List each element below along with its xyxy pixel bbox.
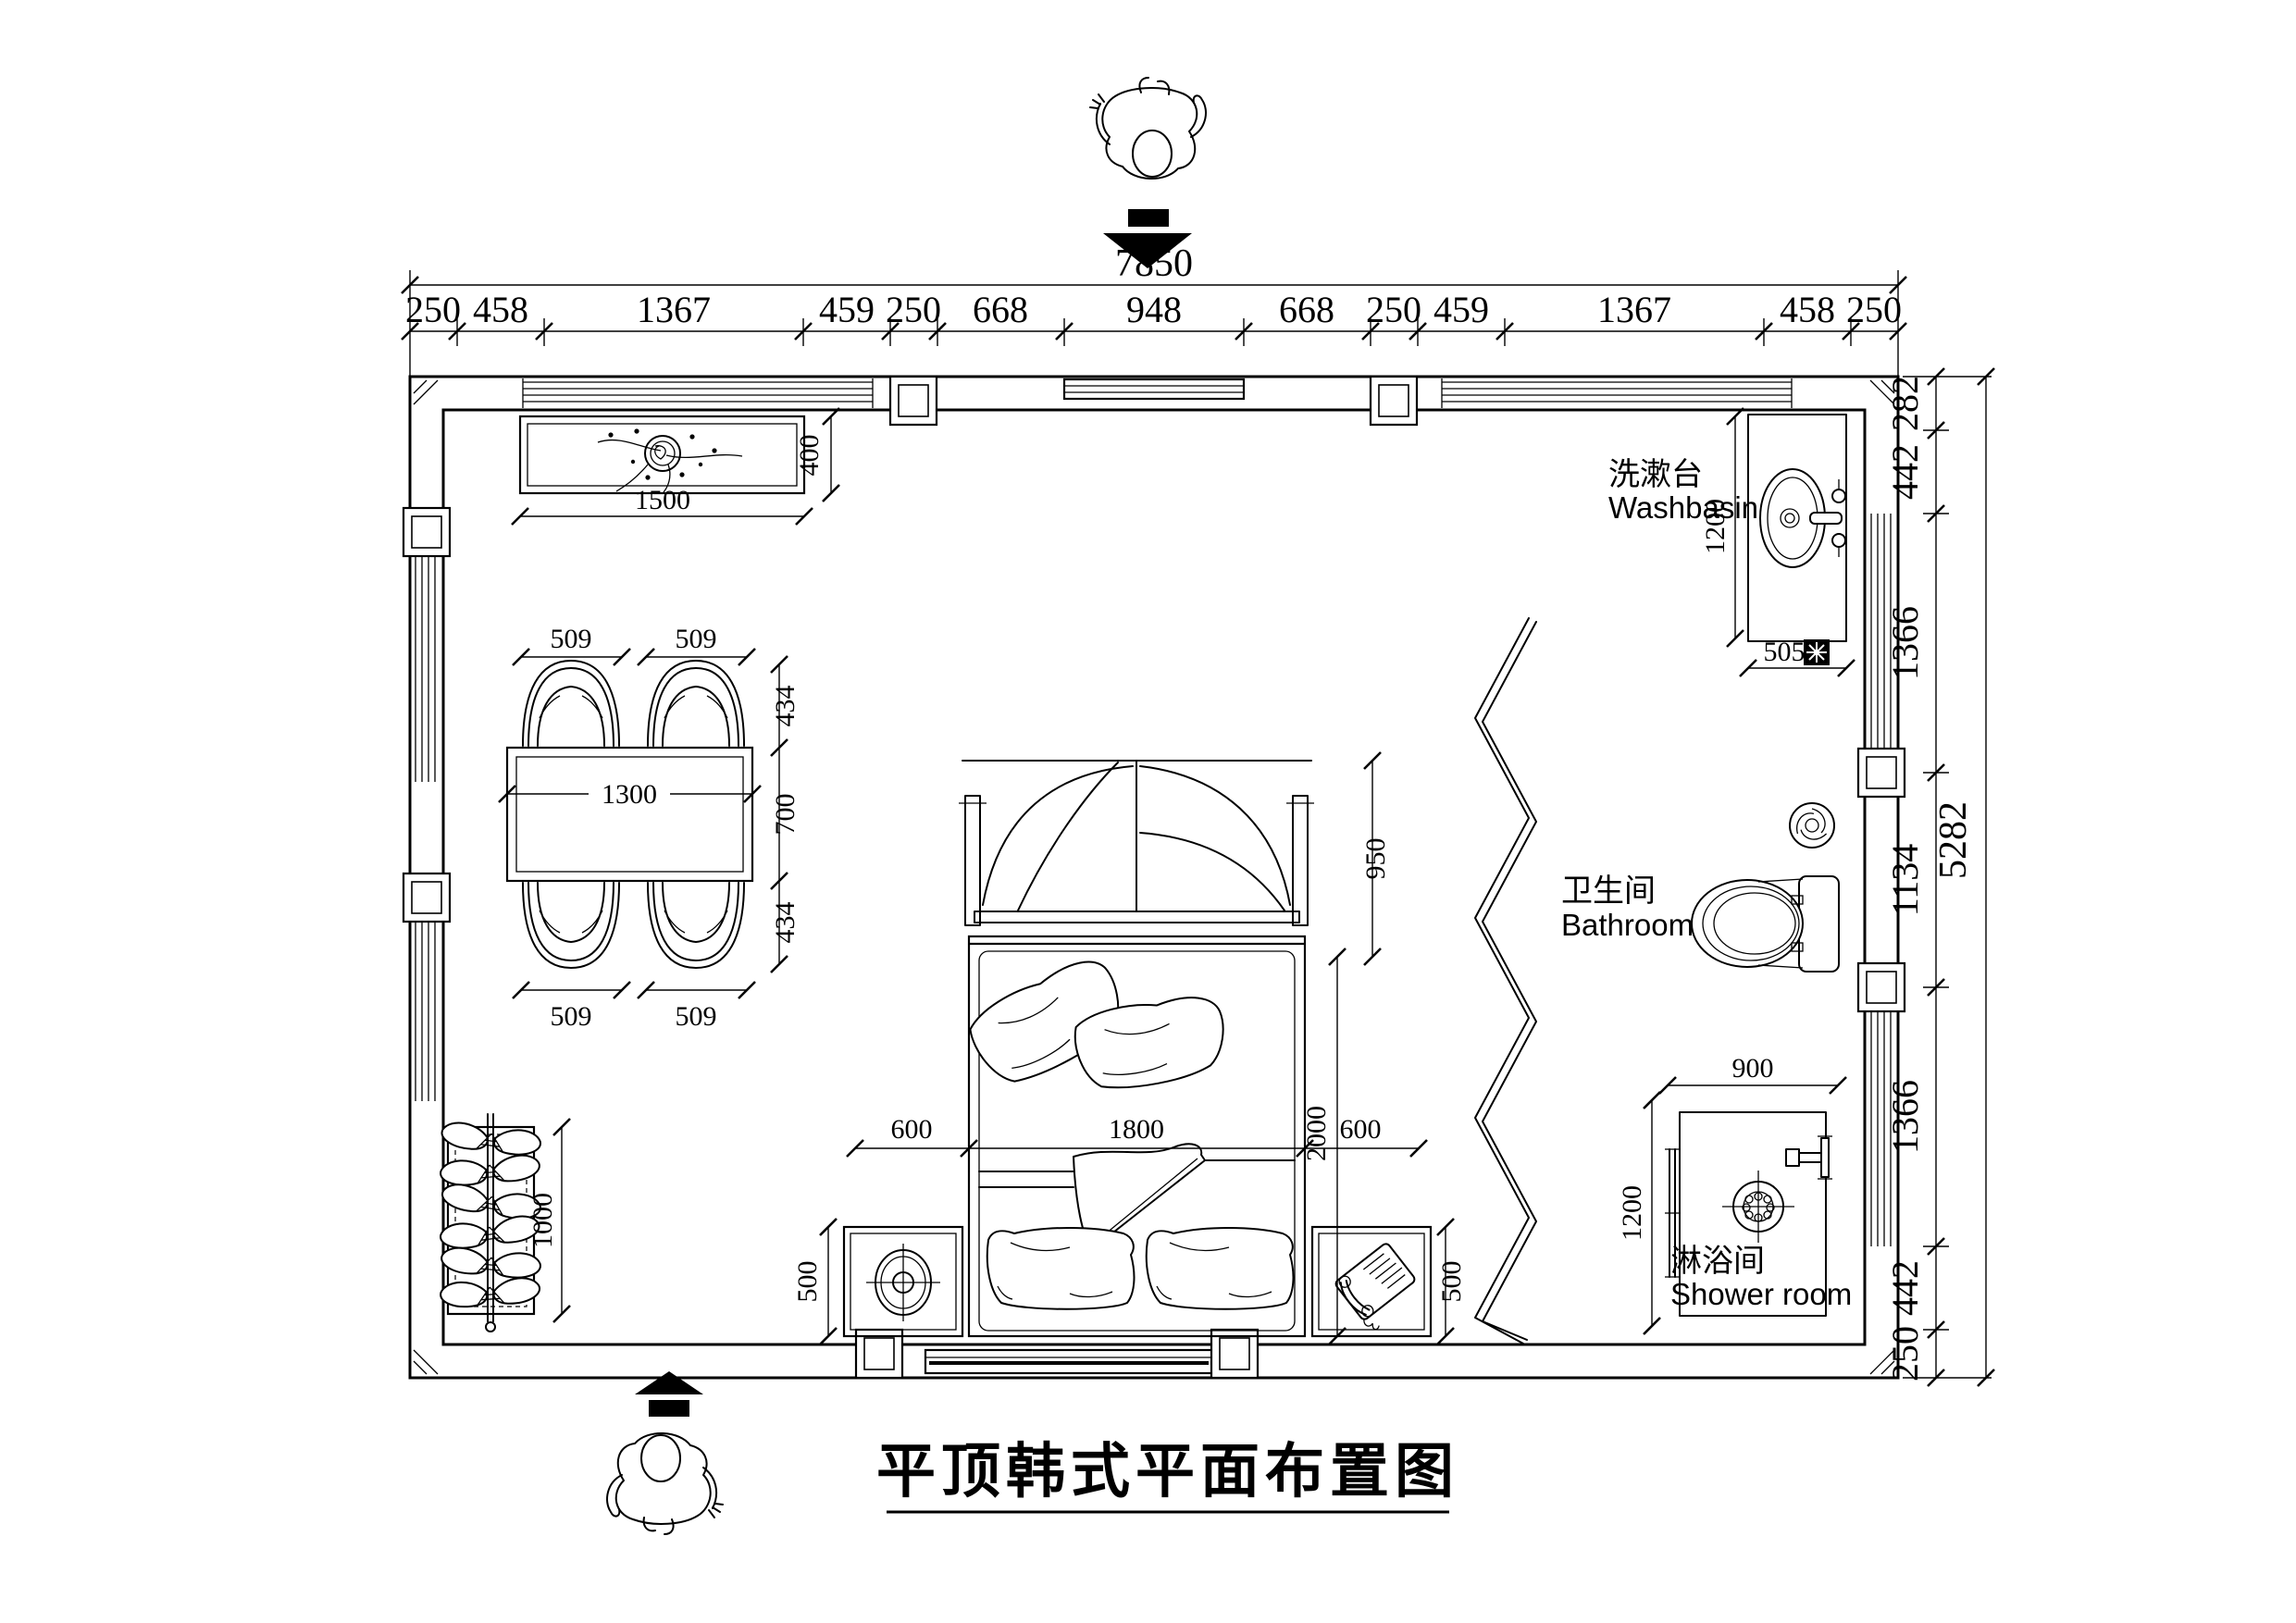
door-top-center: [1064, 379, 1244, 399]
table-lamp-icon: [866, 1244, 940, 1321]
pillow: [987, 1228, 1135, 1309]
telephone-icon: [1334, 1242, 1425, 1332]
floorplan-canvas: 7850 250 458 1367 459 250 668 948 668 25…: [0, 0, 2296, 1623]
pillow: [1147, 1228, 1294, 1309]
bed-canopy: [959, 761, 1314, 925]
dim-bed: 1800: [1109, 1114, 1164, 1145]
shower-label-en: Shower room: [1670, 1277, 1852, 1311]
entry-arrow-up-icon: [635, 1371, 703, 1394]
dim-right-total: 5282: [1932, 801, 1975, 879]
washbasin-label-en: Washbasin: [1608, 490, 1758, 525]
bathroom-area: 卫生间 Bathroom: [1561, 803, 1839, 972]
dining-set: 509 509 509 509 434 700 434 1300: [499, 624, 800, 1032]
drain-swirl-icon: [1790, 803, 1834, 848]
shower-head-icon: [1722, 1171, 1794, 1243]
wardrobe-rack: 1000: [440, 1114, 570, 1332]
window-top-right: [1442, 378, 1792, 408]
hanger-icon: [441, 1246, 541, 1280]
door-bottom-center: [925, 1350, 1212, 1373]
floor-drain-icon: [1804, 639, 1830, 665]
dim-right-seg: 250: [1884, 1326, 1926, 1381]
dim-dining-side: 434: [770, 686, 800, 727]
right-dimension-chain: 282 442 1366 1134 1366 442 250 5282: [1884, 368, 1994, 1386]
partition-zigzag: [1475, 618, 1536, 1344]
bathroom-label-en: Bathroom: [1561, 908, 1694, 942]
dim-right-seg: 1134: [1884, 844, 1926, 917]
dining-chair: [648, 661, 744, 746]
dim-top-seg: 668: [1279, 289, 1334, 330]
dim-top-seg: 250: [886, 289, 941, 330]
person-icon: [607, 1433, 723, 1534]
dim-top-seg: 250: [1366, 289, 1421, 330]
dim-top-seg: 250: [1846, 289, 1902, 330]
entry-bar: [649, 1400, 689, 1417]
dim-top-seg: 1367: [637, 289, 711, 330]
dining-chair: [648, 883, 744, 968]
dim-chair: 509: [551, 624, 592, 654]
dim-tvcab-depth: 400: [794, 435, 825, 477]
bathroom-label-zh: 卫生间: [1561, 873, 1656, 909]
dim-top-seg: 458: [1780, 289, 1835, 330]
dining-dims: 509 509 509 509 434 700 434 1300: [499, 624, 800, 1032]
dim-top-seg: 459: [1433, 289, 1489, 330]
drawing-title: 平顶韩式平面布置图: [876, 1438, 1459, 1512]
dim-nightstand: 500: [792, 1261, 823, 1303]
dim-top-seg: 459: [819, 289, 875, 330]
dim-table-length: 1300: [602, 779, 657, 810]
dim-top-seg: 1367: [1597, 289, 1671, 330]
dining-chair: [523, 661, 619, 746]
dim-right-seg: 282: [1884, 376, 1926, 431]
nightstand-left: [844, 1227, 962, 1336]
dim-top-seg: 668: [973, 289, 1028, 330]
window-left-upper: [416, 518, 435, 782]
washbasin-area: 1200 505 洗漱台 Washbasin: [1608, 408, 1855, 676]
dim-bed: 600: [891, 1114, 933, 1145]
hanger-icon: [440, 1277, 540, 1308]
title-text: 平顶韩式平面布置图: [876, 1438, 1459, 1505]
dim-bed-length: 2000: [1301, 1106, 1332, 1161]
dim-right-seg: 442: [1884, 1260, 1926, 1316]
dim-right-seg: 1366: [1884, 606, 1926, 680]
dim-right-seg: 1366: [1884, 1080, 1926, 1154]
tv-cabinet: 1500 400: [512, 408, 839, 525]
window-top-left: [523, 378, 873, 408]
dim-chair: 509: [676, 1001, 717, 1032]
person-icon: [1090, 78, 1206, 179]
hanger-icon: [440, 1154, 540, 1187]
washbasin-label-zh: 洗漱台: [1608, 457, 1703, 492]
dim-tvcab-width: 1500: [635, 485, 690, 515]
shower-room: 900 1200 淋浴间 Shower room: [1617, 1053, 1852, 1334]
dim-right-seg: 442: [1884, 444, 1926, 500]
hanger-icon: [440, 1214, 541, 1251]
dim-chair: 509: [676, 624, 717, 654]
toilet-icon: [1692, 876, 1839, 972]
dim-chair: 509: [551, 1001, 592, 1032]
dim-top-seg: 250: [405, 289, 461, 330]
nightstand-right: [1312, 1227, 1431, 1336]
dim-shower-depth: 1200: [1617, 1185, 1647, 1241]
dim-canopy: 950: [1360, 838, 1391, 880]
entry-bar: [1128, 209, 1169, 227]
dim-nightstand: 500: [1436, 1261, 1467, 1303]
dim-top-seg: 948: [1126, 289, 1182, 330]
corner-hatches: [414, 380, 1894, 1374]
plant-decor-icon: [598, 428, 742, 492]
shower-mixer-icon: [1786, 1136, 1832, 1179]
shower-label-zh: 淋浴间: [1670, 1244, 1765, 1279]
faucet-icon: [1810, 479, 1845, 557]
dim-shower-width: 900: [1732, 1053, 1774, 1084]
dim-dining-side: 434: [770, 902, 800, 944]
entrance-bottom: [607, 1371, 723, 1534]
dining-chair: [523, 883, 619, 968]
dim-wardrobe: 1000: [527, 1193, 558, 1248]
dim-bed: 600: [1340, 1114, 1382, 1145]
dim-dining-side: 700: [770, 794, 800, 836]
dim-washbasin-width: 505: [1764, 637, 1806, 667]
entrance-top: [1090, 78, 1206, 268]
floorplan-svg: 7850 250 458 1367 459 250 668 948 668 25…: [0, 0, 2296, 1623]
dim-top-seg: 458: [473, 289, 528, 330]
